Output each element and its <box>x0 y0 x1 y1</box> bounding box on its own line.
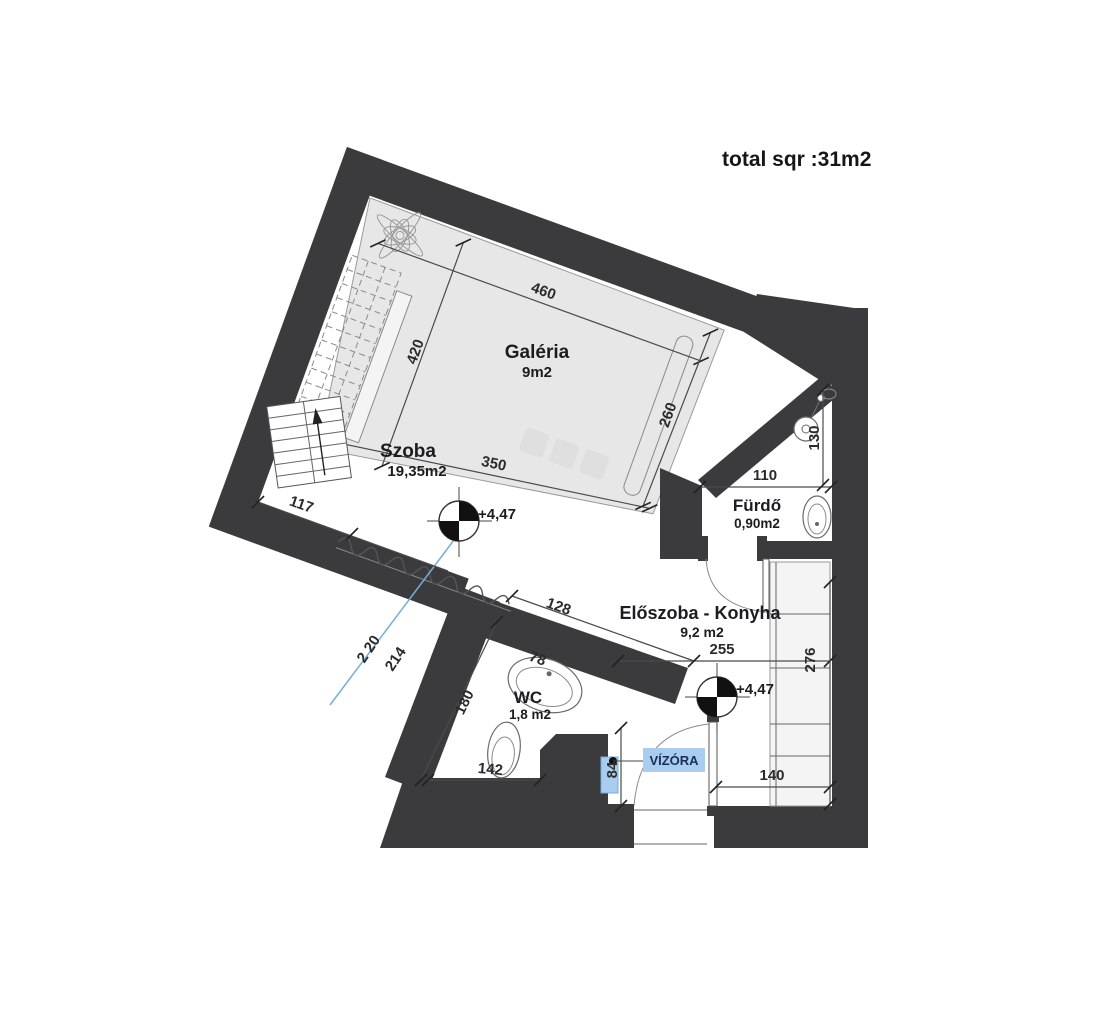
dim-276-label: 276 <box>802 647 819 672</box>
szoba-area-label: 19,35m2 <box>387 463 446 480</box>
floor-plan-page: 460 420 350 260 <box>0 0 1106 1024</box>
wall-szoba-bottom <box>209 489 469 616</box>
furdo-name: Fürdő <box>733 496 781 515</box>
vizora-label: VÍZÓRA <box>649 753 699 768</box>
furdo-sink <box>803 496 831 538</box>
dim-128-label: 128 <box>544 595 573 620</box>
wall-bottom-connector <box>604 804 634 848</box>
dim-140-label: 140 <box>759 767 784 784</box>
dim-130-label: 130 <box>806 425 823 450</box>
dim-117-label: 117 <box>287 493 315 517</box>
wall-column <box>540 734 608 848</box>
page-title: total sqr :31m2 <box>722 148 871 171</box>
wall-right <box>832 308 868 848</box>
dim-214-label: 214 <box>382 643 410 674</box>
elevation-marker-szoba: +4,47 <box>427 487 516 557</box>
wall-bottom-left <box>380 778 545 848</box>
dim-110-label: 110 <box>753 467 777 484</box>
elevation-marker-eloszoba: +4,47 <box>685 663 774 733</box>
furdo-area-label: 0,90m2 <box>734 516 780 531</box>
dim-255-label: 255 <box>709 641 734 658</box>
floor-plan-svg: 460 420 350 260 <box>0 0 1106 1024</box>
dim-220-label: 2 20 <box>354 632 384 666</box>
szoba-name: Szoba <box>380 441 436 462</box>
wall-bottom-right <box>714 806 868 848</box>
dim-84-label: 84 <box>604 761 621 778</box>
galeria-name: Galéria <box>505 342 570 363</box>
furdo-door-jamb-right <box>757 536 767 561</box>
wall-furdo-left <box>660 468 702 559</box>
wc-area-label: 1,8 m2 <box>509 707 551 722</box>
wc-name: WC <box>514 688 542 707</box>
stairs <box>267 396 352 488</box>
eloszoba-name: Előszoba - Konyha <box>619 603 781 623</box>
elevation-label-eloszoba: +4,47 <box>736 681 774 698</box>
wall-furdo-bottom-right <box>764 541 832 559</box>
eloszoba-area-label: 9,2 m2 <box>680 624 724 640</box>
elevation-label-szoba: +4,47 <box>478 506 516 523</box>
hall-door-jamb-bottom <box>707 806 719 816</box>
room-label-furdo: Fürdő 0,90m2 <box>733 496 781 531</box>
room-label-eloszoba: Előszoba - Konyha 9,2 m2 <box>619 603 781 640</box>
galeria-area-label: 9m2 <box>522 364 552 381</box>
furdo-door-jamb-left <box>698 536 708 561</box>
dim-142-label: 142 <box>477 760 503 779</box>
